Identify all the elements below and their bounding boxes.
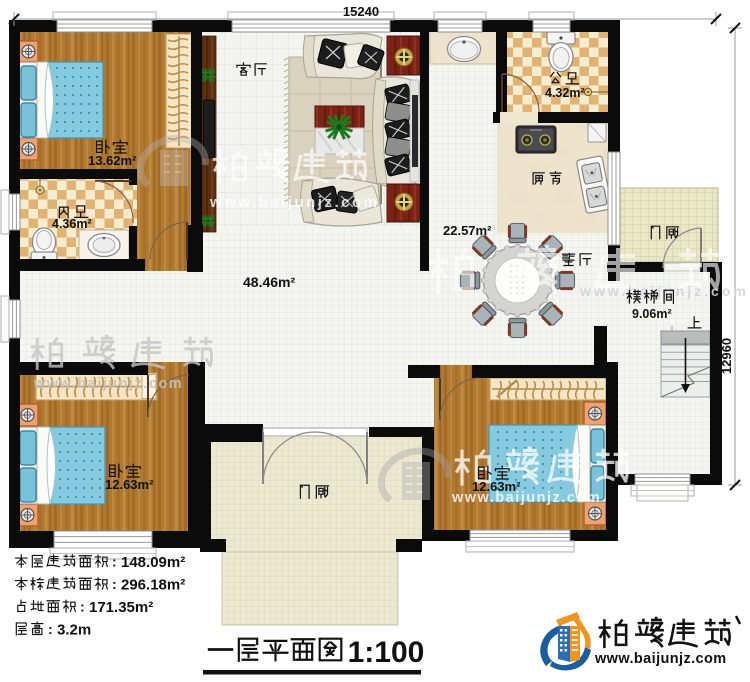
svg-text:4.32m²: 4.32m² xyxy=(545,86,585,100)
svg-text::: : xyxy=(48,621,53,637)
svg-text:148.09m²: 148.09m² xyxy=(121,554,185,571)
svg-text:4.36m²: 4.36m² xyxy=(52,217,92,231)
svg-text:www.baijunjz.com: www.baijunjz.com xyxy=(594,651,727,667)
svg-text:3.2m: 3.2m xyxy=(57,622,91,639)
svg-text:1:100: 1:100 xyxy=(348,636,425,669)
svg-text:296.18m²: 296.18m² xyxy=(121,577,185,594)
svg-text:9.06m²: 9.06m² xyxy=(632,307,672,321)
svg-text::: : xyxy=(80,599,85,615)
svg-text::: : xyxy=(112,576,117,592)
svg-text:www.baijunjz.com: www.baijunjz.com xyxy=(33,376,183,392)
svg-text:12960: 12960 xyxy=(719,338,734,374)
svg-text:171.35m²: 171.35m² xyxy=(89,599,153,616)
svg-text::: : xyxy=(112,554,117,570)
svg-text:22.57m²: 22.57m² xyxy=(443,223,492,238)
svg-text:www.baijunjz.com: www.baijunjz.com xyxy=(209,194,379,211)
svg-text:12.63m²: 12.63m² xyxy=(105,477,154,492)
svg-text:12.63m²: 12.63m² xyxy=(472,479,521,494)
svg-text:15240: 15240 xyxy=(343,4,379,19)
svg-text:13.62m²: 13.62m² xyxy=(88,153,137,168)
svg-text:48.46m²: 48.46m² xyxy=(243,274,295,290)
